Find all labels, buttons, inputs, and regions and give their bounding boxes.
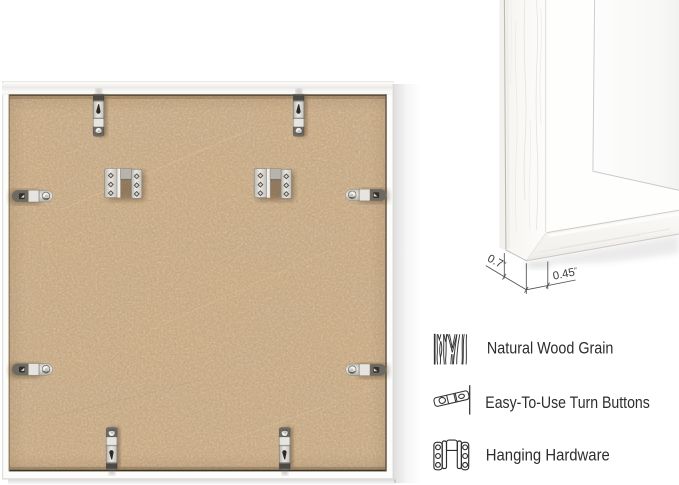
svg-text:Easy-To-Use Turn Buttons: Easy-To-Use Turn Buttons [485,394,650,412]
svg-text:Hanging Hardware: Hanging Hardware [486,447,610,465]
svg-text:Natural Wood Grain: Natural Wood Grain [487,339,614,357]
